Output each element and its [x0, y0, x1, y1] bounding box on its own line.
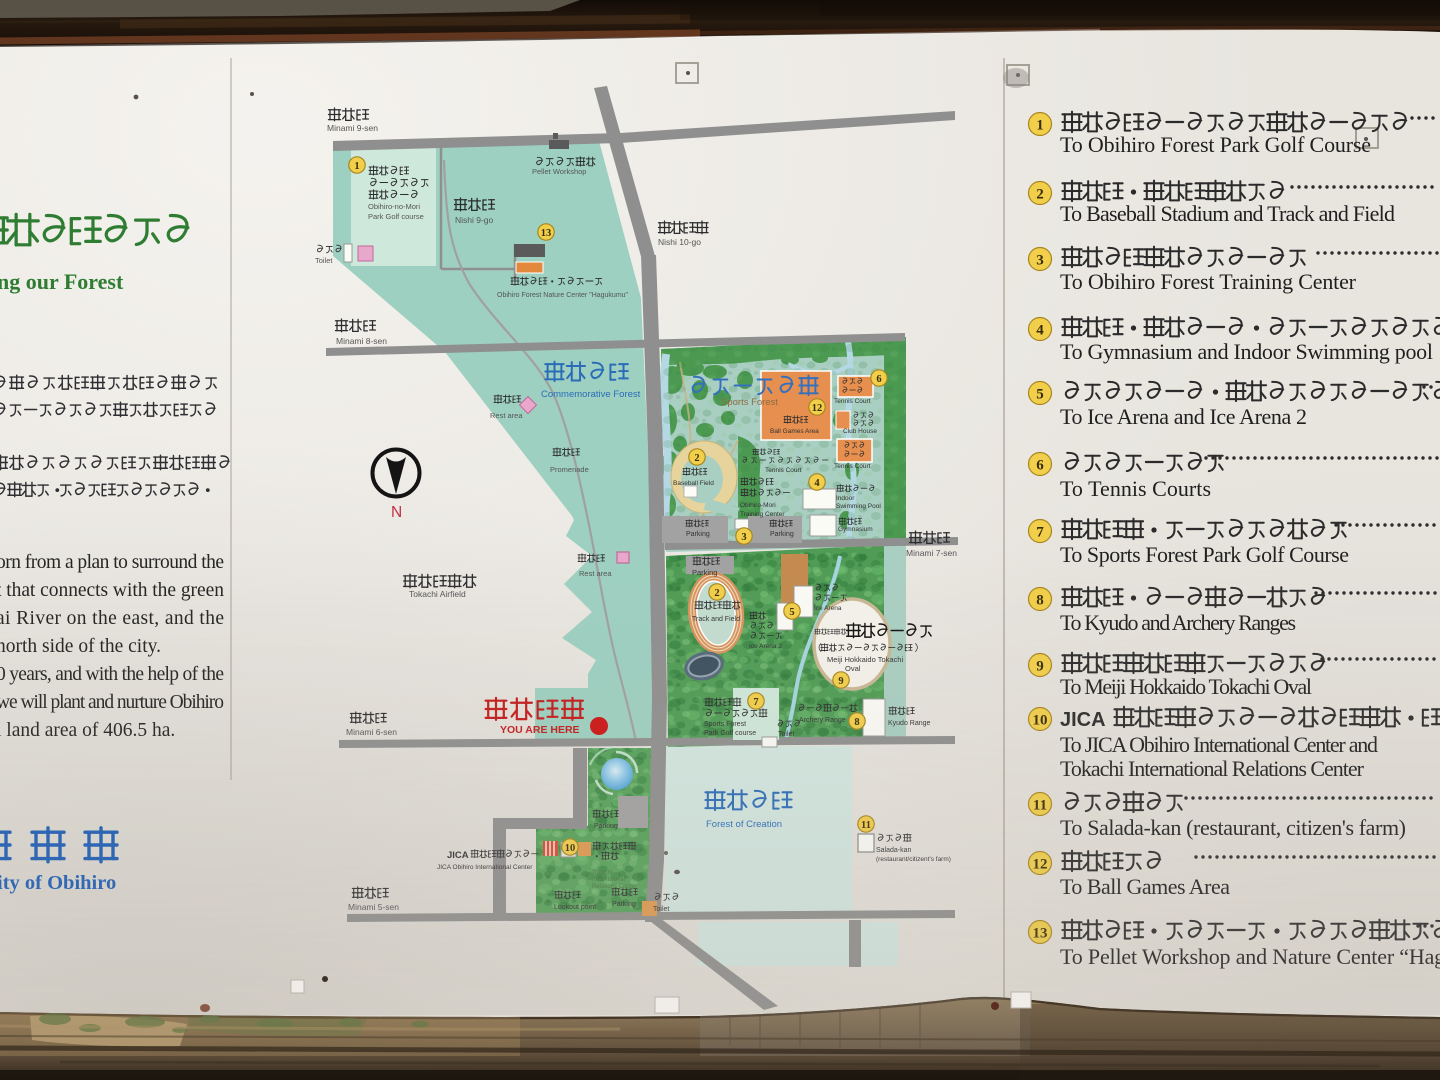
- svg-text:To Obihiro Forest Park Golf Co: To Obihiro Forest Park Golf Course: [1060, 132, 1371, 157]
- svg-text:Obihiro Forest Nature Center ": Obihiro Forest Nature Center "Hagukumu": [497, 292, 629, 299]
- svg-text:To Tennis Courts: To Tennis Courts: [1060, 476, 1211, 501]
- svg-text:3: 3: [1036, 252, 1044, 268]
- svg-text:Toilet: Toilet: [315, 256, 333, 265]
- svg-text:1: 1: [1036, 117, 1044, 133]
- svg-text:Gymnasium: Gymnasium: [838, 526, 873, 533]
- svg-text:2: 2: [694, 453, 699, 464]
- svg-text:Commemorative Forest: Commemorative Forest: [541, 389, 641, 400]
- svg-text:Tennis Court: Tennis Court: [765, 467, 802, 474]
- svg-text:Swimming Pool: Swimming Pool: [836, 503, 881, 510]
- svg-text:Pellet Workshop: Pellet Workshop: [532, 167, 586, 176]
- svg-text:4: 4: [814, 478, 820, 489]
- svg-text:N: N: [391, 504, 402, 521]
- svg-text:6: 6: [1036, 457, 1044, 473]
- svg-text:To Gymnasium and Indoor Swimmi: To Gymnasium and Indoor Swimming pool: [1060, 339, 1433, 364]
- svg-text:Obihiro-Mori: Obihiro-Mori: [740, 502, 776, 509]
- svg-text:Rest area: Rest area: [490, 411, 523, 420]
- svg-text:7: 7: [1036, 524, 1044, 540]
- svg-text:Club House: Club House: [843, 428, 877, 435]
- svg-text:Parking: Parking: [686, 531, 710, 538]
- svg-text:Training Center: Training Center: [740, 511, 785, 518]
- svg-text:To Ice Arena and Ice Arena 2: To Ice Arena and Ice Arena 2: [1060, 404, 1307, 429]
- svg-text:Minami 8-sen: Minami 8-sen: [336, 336, 387, 346]
- svg-text:ng our Forest: ng our Forest: [0, 269, 124, 294]
- svg-text:To Baseball Stadium and Track: To Baseball Stadium and Track and Field: [1060, 201, 1395, 226]
- svg-text:13: 13: [541, 228, 552, 239]
- svg-text:Ball Games Area: Ball Games Area: [770, 428, 819, 435]
- svg-text:Indoor: Indoor: [836, 495, 855, 502]
- svg-text:5: 5: [1036, 386, 1044, 402]
- svg-text:Baseball Field: Baseball Field: [673, 480, 714, 487]
- svg-text:Minami 9-sen: Minami 9-sen: [327, 123, 378, 133]
- svg-text:Parking: Parking: [770, 531, 794, 538]
- svg-text:Nishi 10-go: Nishi 10-go: [658, 237, 701, 247]
- svg-text:Park Golf course: Park Golf course: [368, 212, 424, 221]
- svg-text:Tennis Court: Tennis Court: [834, 463, 871, 470]
- svg-text:Nishi 9-go: Nishi 9-go: [455, 215, 494, 225]
- svg-text:To Obihiro Forest Training Cen: To Obihiro Forest Training Center: [1060, 269, 1357, 294]
- svg-text:1: 1: [354, 161, 359, 172]
- svg-text:12: 12: [812, 403, 823, 414]
- svg-text:Obihiro-no-Mori: Obihiro-no-Mori: [368, 202, 420, 211]
- svg-text:Tennis Court: Tennis Court: [834, 398, 871, 405]
- svg-text:2: 2: [1036, 186, 1044, 202]
- svg-text:Promenade: Promenade: [550, 465, 589, 474]
- svg-text:Sports Forest: Sports Forest: [721, 397, 778, 408]
- svg-text:4: 4: [1036, 322, 1044, 338]
- svg-text:6: 6: [876, 374, 881, 385]
